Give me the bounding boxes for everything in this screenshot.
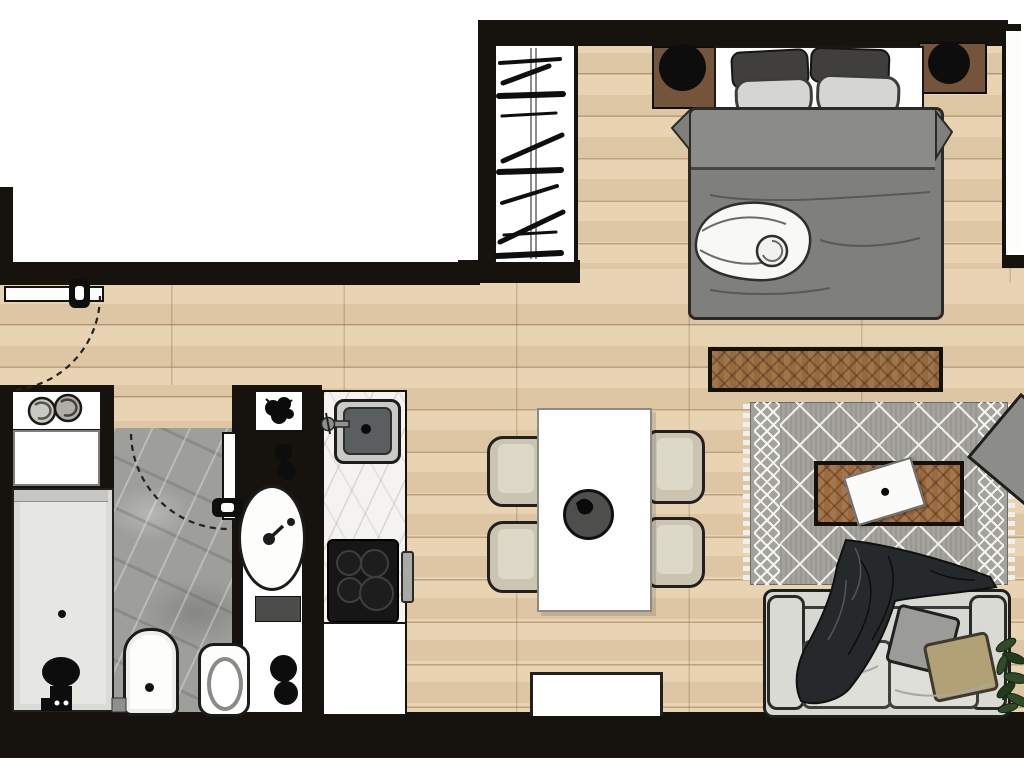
dining-chair-right-1: [648, 430, 705, 504]
wall-bottom: [0, 712, 1024, 758]
bidet-drain: [145, 683, 154, 692]
vanity-bin-2: [274, 681, 298, 705]
dining-chair-right-2: [648, 517, 705, 588]
lamp-right: [928, 42, 970, 84]
bathroom: [0, 385, 322, 712]
dining-chair-left-1: [487, 436, 544, 507]
utility-nook: [13, 430, 100, 486]
sofa-arm-left: [767, 595, 805, 710]
cooktop: [327, 539, 399, 623]
shower-drain: [58, 610, 66, 618]
bathroom-door-leaf: [222, 432, 237, 520]
tray-dot: [880, 487, 890, 497]
vanity-bin-1: [270, 655, 297, 682]
wardrobe-side-panel: [574, 46, 578, 262]
entry-door-leaf: [4, 286, 104, 302]
wardrobe: [496, 46, 574, 262]
shower-head-strip: [14, 490, 108, 502]
burner-1: [336, 550, 362, 576]
floorplan-canvas: [0, 0, 1024, 768]
niche-towels: [13, 392, 100, 429]
kitchen-sink-drain: [361, 424, 371, 434]
chair-seat: [498, 444, 534, 493]
bed: [688, 107, 944, 320]
chair-seat: [657, 438, 693, 490]
counter-handle: [401, 551, 414, 603]
chair-seat: [498, 529, 534, 579]
tv-console: [530, 672, 663, 716]
bidet: [123, 628, 179, 716]
wall-entry-top: [0, 262, 480, 285]
rug-border-left: [754, 402, 780, 585]
lamp-left: [659, 44, 706, 91]
toilet-bowl: [207, 657, 243, 711]
kitchen-base-cabinet: [322, 622, 407, 716]
burner-2: [360, 549, 389, 578]
soap-bottle-2: [277, 461, 296, 480]
duvet-fold-band: [691, 110, 935, 170]
centerpiece-bowl: [563, 489, 614, 540]
wall-wardrobe-left: [478, 20, 496, 283]
dining-chair-left-2: [487, 521, 544, 593]
vanity-basin: [238, 485, 306, 591]
vanity-towel: [255, 596, 301, 622]
foot-bench: [708, 347, 943, 392]
toilet: [198, 643, 250, 717]
burner-4: [359, 576, 394, 611]
rug-fringe-left: [743, 404, 750, 583]
shower: [12, 488, 114, 712]
sofa-cushion-left: [802, 640, 892, 709]
niche-plant: [256, 392, 302, 430]
wall-left-stub: [0, 187, 13, 285]
sofa-back-seam: [792, 606, 976, 609]
chair-seat: [657, 525, 693, 574]
bathroom-doorway-threshold: [114, 385, 232, 430]
soap-bottle-1: [275, 444, 292, 461]
